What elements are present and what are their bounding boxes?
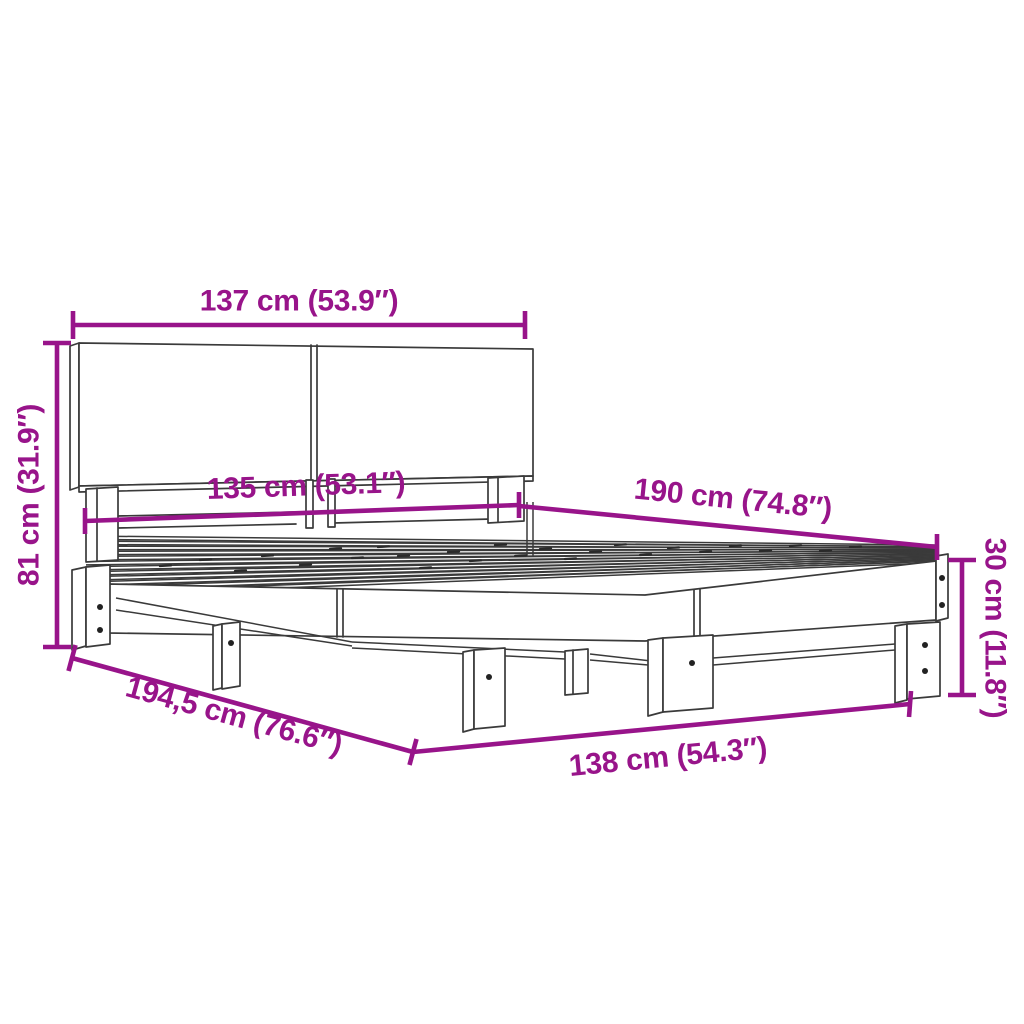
dimension-label-top-width: 137 cm (53.9″) xyxy=(200,285,399,318)
dimension-bottom-left-length: 194,5 cm (76.6″) xyxy=(69,645,417,765)
corner-post-right xyxy=(936,554,948,621)
dimension-label-middle-width: 135 cm (53.1″) xyxy=(206,466,406,506)
bed-frame-dimension-diagram: 137 cm (53.9″) 81 cm (31.9″) 135 cm (53.… xyxy=(0,0,1024,1024)
headboard-side-edge xyxy=(70,343,79,490)
dimension-label-bottom-width: 138 cm (54.3″) xyxy=(568,731,769,783)
leg-foot-right xyxy=(895,622,940,703)
leg-head-left xyxy=(72,565,110,650)
diagram-canvas: 137 cm (53.9″) 81 cm (31.9″) 135 cm (53.… xyxy=(0,0,1024,1024)
dimension-label-right-length: 190 cm (74.8″) xyxy=(633,473,834,526)
leg-front-corner xyxy=(648,635,713,716)
dimension-left-height: 81 cm (31.9″) xyxy=(13,343,72,647)
headboard-post-left xyxy=(86,487,118,562)
leg-left-front xyxy=(463,648,505,732)
dimension-top-width: 137 cm (53.9″) xyxy=(73,285,525,340)
dimension-label-left-height: 81 cm (31.9″) xyxy=(13,404,46,586)
dimension-label-right-height: 30 cm (11.8″) xyxy=(979,538,1012,719)
bed-frame-drawing xyxy=(70,343,948,732)
headboard-panel xyxy=(79,343,533,486)
dimension-right-height: 30 cm (11.8″) xyxy=(948,538,1012,719)
leg-front-small xyxy=(565,649,588,695)
leg-left-mid xyxy=(213,622,240,690)
